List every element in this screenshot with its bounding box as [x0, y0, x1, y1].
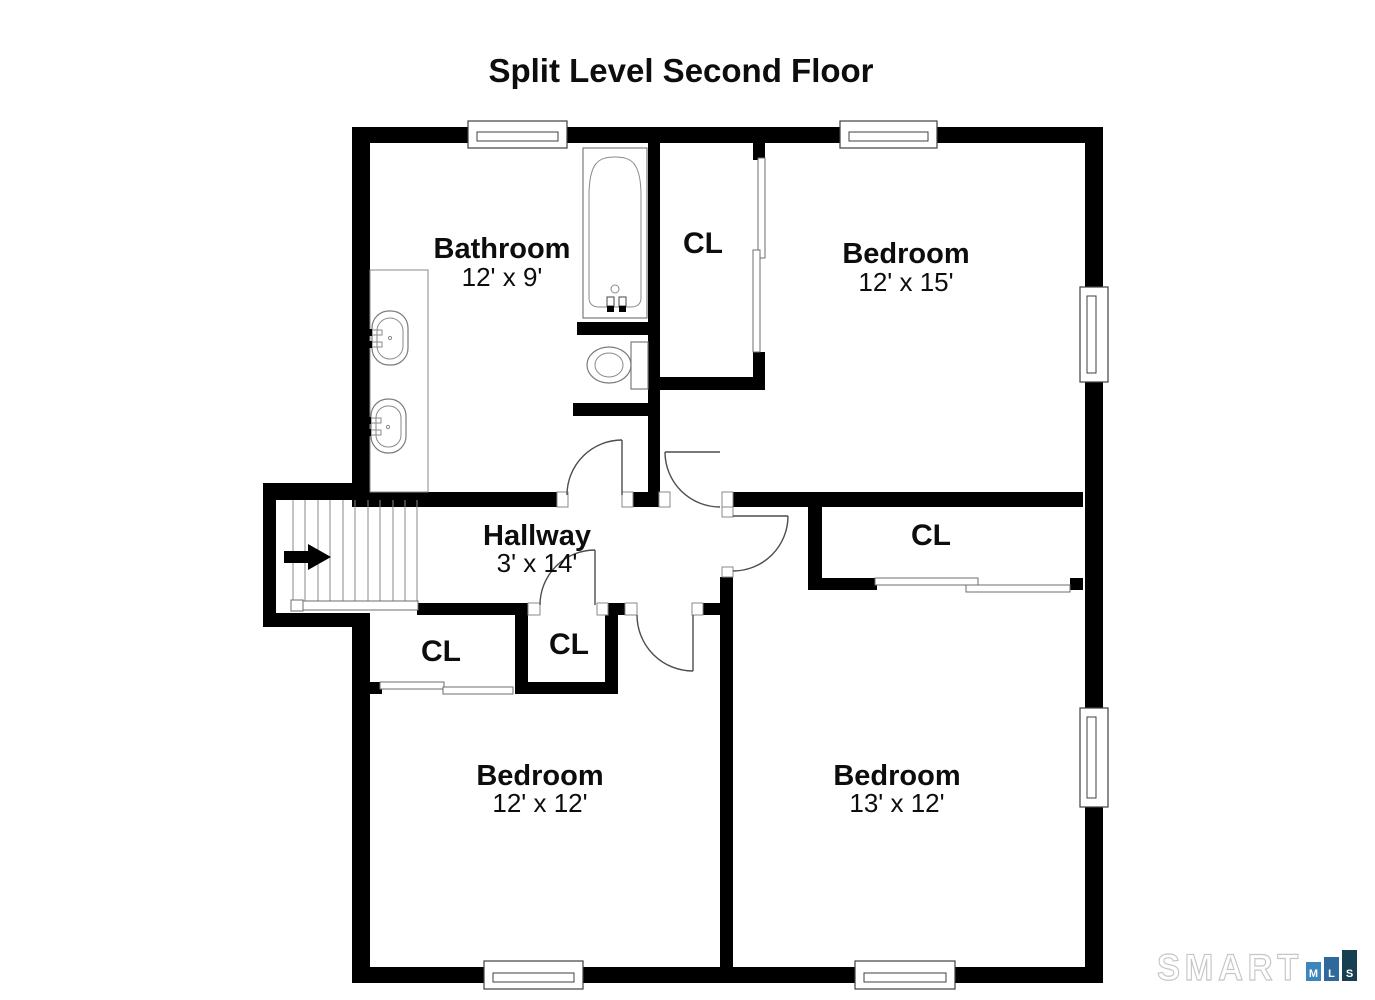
wall-closet-mid-left — [515, 613, 528, 694]
stairs — [284, 500, 418, 611]
window-bathroom-top — [468, 121, 567, 148]
label-closet-hall-mid: CL — [549, 628, 589, 661]
wall-closet-mid-right — [605, 613, 618, 694]
wall-outer-left-lower — [352, 613, 370, 983]
stair-landing-edge — [292, 601, 418, 610]
label-hallway-dims: 3' x 14' — [497, 548, 578, 578]
wall-closet-top-bottom — [655, 377, 763, 390]
wall-outer-top — [352, 127, 1103, 143]
door-bedroom-left — [637, 615, 693, 671]
label-bedroom-left-dims: 12' x 12' — [492, 788, 587, 818]
vanity-counter — [366, 270, 428, 492]
window-right-upper — [1080, 287, 1108, 382]
wall-closet-right-bottom-a — [808, 578, 877, 590]
floor-plan-canvas: Split Level Second Floor — [0, 0, 1375, 1000]
wall-closet-right-left — [808, 507, 822, 590]
tub-faucet-b — [619, 297, 626, 306]
sink-bottom — [366, 399, 406, 453]
label-bedroom-top-dims: 12' x 15' — [858, 267, 953, 297]
fixtures — [366, 148, 648, 492]
logo-letter-m: M — [1309, 968, 1318, 980]
wall-hall-south-a — [417, 603, 540, 615]
wall-outer-left-upper — [352, 127, 370, 500]
closet-left-slider-a — [380, 682, 444, 689]
logo-brand-text: SMART — [1157, 947, 1303, 988]
page-title: Split Level Second Floor — [488, 52, 873, 89]
label-bedroom-right-dims: 13' x 12' — [849, 788, 944, 818]
label-bathroom-dims: 12' x 9' — [462, 262, 543, 292]
label-closet-hall-left: CL — [421, 635, 461, 668]
sink-top — [367, 311, 408, 365]
closet-right-slider-b — [966, 585, 1070, 592]
closet-top-slider-b — [753, 250, 760, 352]
window-bedroom-top — [840, 121, 937, 148]
wall-cl-top-stub — [753, 143, 765, 160]
bathtub — [583, 148, 647, 318]
wall-hall-north-a — [352, 492, 568, 507]
stair-direction-arrow — [284, 544, 331, 570]
window-right-lower — [1080, 708, 1108, 807]
label-closet-right: CL — [911, 519, 951, 552]
wall-toilet-niche — [573, 403, 648, 416]
closet-left-slider-b — [443, 687, 513, 694]
logo-letter-l: L — [1328, 968, 1335, 980]
logo-letter-s: S — [1346, 968, 1353, 980]
door-bedroom-right — [733, 516, 788, 571]
door-bedroom-top — [665, 452, 720, 507]
wall-hall-north-c — [722, 492, 1083, 507]
wall-tub-niche — [577, 322, 660, 335]
window-bottom-left — [484, 961, 583, 989]
wall-outer-right — [1085, 127, 1103, 983]
label-bathroom-name: Bathroom — [434, 233, 571, 265]
wall-bedroom-divider — [720, 577, 733, 967]
tub-faucet-a-foot — [607, 306, 614, 312]
wall-stair-left — [263, 483, 276, 627]
floor-plan-page: Split Level Second Floor — [0, 0, 1375, 1000]
wall-closet-right-bottom-b — [1070, 578, 1083, 590]
window-bottom-right — [855, 961, 955, 989]
toilet — [587, 342, 648, 389]
closet-right-slider-a — [875, 578, 978, 585]
wall-stair-bottom — [263, 613, 370, 627]
stair-newel — [291, 600, 303, 611]
tub-faucet-a — [607, 297, 614, 306]
label-bedroom-top-name: Bedroom — [842, 238, 969, 270]
wall-outer-bottom — [352, 967, 1103, 983]
tub-faucet-b-foot — [619, 306, 626, 312]
wall-closet-mid-bottom — [515, 682, 618, 694]
room-labels: Bathroom 12' x 9' CL Bedroom 12' x 15' H… — [421, 227, 970, 818]
label-closet-top: CL — [683, 227, 723, 260]
closet-top-slider-a — [758, 158, 765, 258]
smartmls-logo: SMART M L S — [1157, 947, 1357, 988]
door-bathroom — [567, 440, 622, 495]
